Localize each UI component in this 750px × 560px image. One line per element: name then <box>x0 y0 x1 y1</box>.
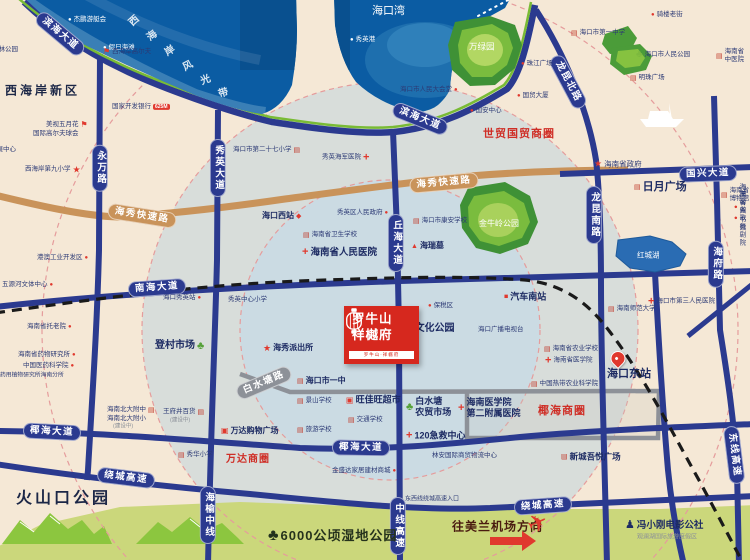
map-poi: 秀英区人民政府● <box>337 209 388 217</box>
road-label: 海秀快速路 <box>409 172 479 194</box>
poi-label: 海口东站 <box>607 368 651 382</box>
cross-icon: + <box>302 248 308 259</box>
scenic-belt-char: 海 <box>142 26 159 44</box>
park-label: 万绿园 <box>469 42 495 53</box>
poi-label: 海口市康安学校 <box>422 217 468 225</box>
poi-label: 会展中心 <box>0 146 16 154</box>
map-poi: ♣海口市人民公园 <box>636 50 690 60</box>
poi-label: 海南北大附中 <box>107 406 146 414</box>
map-poi: ▤海口市一中 <box>297 376 346 386</box>
poi-label: 625M <box>153 104 170 110</box>
poi-label: 金盛达家居建材商城 <box>332 467 391 475</box>
road-label: 龙昆北路 <box>547 53 589 112</box>
map-poi: 林安国际商贸物流中心 <box>432 452 497 460</box>
district-label: 西海岸新区 <box>5 84 80 99</box>
poi-label: 国家开发银行 <box>112 103 151 111</box>
poi-label: 王府井百货 <box>163 408 196 416</box>
map-poi: ▤中国热带农业科学院 <box>531 380 598 388</box>
map-poi: ●珠江广场 <box>521 60 553 68</box>
scenic-belt-char: 带 <box>216 83 230 100</box>
map-poi: ●杰鹏游艇会 <box>68 16 106 24</box>
poi-label: 6000公顷湿地公园 <box>281 528 398 544</box>
poi-label: (建设中) <box>170 418 190 425</box>
road-label: 海府路 <box>708 241 724 288</box>
poi-label: 旺佳旺超市 <box>356 394 401 405</box>
wdot-icon: ● <box>68 17 72 23</box>
map-poi: ♣白水塘 农贸市场 <box>406 396 451 419</box>
bldg-icon: ▤ <box>544 346 551 353</box>
map-poi: 秀英中心小学 <box>228 296 267 304</box>
poi-label: 文化公园 <box>415 323 455 336</box>
map-poi: ▤日月广场 <box>634 181 687 195</box>
map-poi: ▤明珠广场 <box>630 74 665 82</box>
dot-icon: ● <box>385 210 389 216</box>
bldg-icon: ▤ <box>561 454 568 461</box>
poi-label: 林安国际商贸物流中心 <box>432 452 497 460</box>
wetland-label: ♣6000公顷湿地公园 <box>268 528 397 544</box>
map-poi: 东西线绕城高速入口 <box>405 496 459 504</box>
poi-label: 秀英区人民政府 <box>337 209 383 217</box>
poi-label: 景山学校 <box>306 397 332 405</box>
business-circle-label: 椰海商圈 <box>538 405 586 419</box>
poi-label: 万达商圈 <box>226 454 270 467</box>
road-label: 东线高速 <box>722 425 745 485</box>
map-poi: 国家开发银行 <box>112 103 151 111</box>
map-poi: 海口市第二十七小学▤ <box>233 146 300 154</box>
poi-label: 海南省药物研究所 <box>18 351 70 359</box>
road-label: 椰海大道 <box>23 422 82 441</box>
dot-icon: ● <box>428 303 432 309</box>
bldg-icon: ▤ <box>297 378 304 385</box>
poi-label: 新城吾悦广场 <box>570 452 621 463</box>
map-poi: ●国安中心 <box>470 107 502 115</box>
poi-label: 世贸国贸商圈 <box>483 128 555 142</box>
map-poi: ▤秀华小学 <box>178 451 213 459</box>
road-label: 永万路 <box>92 145 108 192</box>
map-poi: 森林公园 <box>0 46 18 54</box>
dot-icon: ● <box>198 295 202 301</box>
map-poi: 海南省托老院● <box>27 323 72 331</box>
map-poi: +120急救中心 <box>406 430 465 441</box>
poi-label: 海口广播电视台 <box>478 326 524 334</box>
poi-label: 国际高尔夫球会 <box>33 130 79 138</box>
map-poi: 海口秀英站● <box>163 294 201 302</box>
star-icon: ★ <box>594 160 602 169</box>
scenic-belt-char: 岸 <box>161 40 178 58</box>
dot-icon: ● <box>68 324 72 330</box>
poi-label: 椰海商圈 <box>538 405 586 419</box>
poi-label: 骑楼老街 <box>657 11 683 19</box>
poi-label: 西海岸新区 <box>5 84 80 99</box>
poi-label: 红城湖 <box>637 250 660 259</box>
poi-label: 海南省政府 <box>604 159 642 168</box>
map-poi: 王府井百货▤ <box>163 408 204 416</box>
map-poi: 海口广播电视台 <box>478 326 524 334</box>
scenic-belt-char: 风 <box>179 56 195 74</box>
poi-label: (建设中) <box>113 424 133 431</box>
dot-icon: ● <box>393 468 397 474</box>
road-label: 秀英大道 <box>210 139 226 197</box>
bldg-icon: ▤ <box>148 407 155 414</box>
poi-label: 保税区 <box>434 302 454 310</box>
map-poi: 会展中心 <box>0 146 16 154</box>
dot-icon: ● <box>651 12 655 18</box>
shop-icon: ▣ <box>346 396 354 404</box>
leaf-icon: ♣ <box>636 50 643 60</box>
map-poi: 药用植物研究所海南分所 <box>0 372 64 379</box>
map-poi: ▤海南省中医院 <box>716 48 750 64</box>
poi-label: 登村市场 <box>155 340 195 353</box>
bldg-icon: ▤ <box>297 427 304 434</box>
map-poi: 625M <box>153 104 170 110</box>
flag-icon: ⚑ <box>103 48 110 56</box>
map-poi: ●骑楼老街 <box>651 11 683 19</box>
map-poi: (建设中) <box>113 424 133 431</box>
poi-label: 海南省卫生学校 <box>312 231 358 239</box>
poi-label: 海南省中医院 <box>725 48 750 64</box>
business-circle-label: 世贸国贸商圈 <box>483 128 555 142</box>
map-poi: ▤海南省农业学校 <box>544 345 598 353</box>
poi-label: 五源河文体中心 <box>2 281 48 289</box>
poi-label: 秀英港 <box>356 36 376 44</box>
poi-label: 万绿园 <box>469 42 495 53</box>
poi-label: 白水塘 农贸市场 <box>415 396 451 419</box>
poi-label: 120急救中心 <box>414 430 465 441</box>
station-pin <box>607 348 628 369</box>
road-label: 丘海大道 <box>388 214 404 272</box>
tree-icon: ♣ <box>268 528 279 544</box>
poi-label: 中国医药科学院 <box>23 362 69 370</box>
map-poi: ★海秀派出所 <box>263 343 313 353</box>
railway-station-label: 海口东站 <box>607 368 651 382</box>
dot-icon: ● <box>470 108 474 114</box>
map-poi: 国际高尔夫球会 <box>33 130 79 138</box>
poi-label: 港澳工业开发区 <box>37 254 83 262</box>
map-poi: ■汽车南站 <box>504 291 546 302</box>
bldg-icon: ▤ <box>303 232 310 239</box>
poi-label: 海瑞墓 <box>420 241 444 251</box>
map-poi: 金盛达家居建材商城● <box>332 467 396 475</box>
map-poi: ▲海瑞墓 <box>411 241 444 251</box>
bldg-icon: ▤ <box>348 417 355 424</box>
poi-label: 海口市第一中学 <box>580 29 626 37</box>
poi-label: 东西线绕城高速入口 <box>405 496 459 504</box>
volcano-park-label: 火山口公园 <box>16 489 111 509</box>
poi-label: 西海岸第九小学 <box>25 166 71 174</box>
map-poi: ⚑西海岸高尔夫 <box>103 48 151 56</box>
poi-label: 中国热带农业科学院 <box>540 380 599 388</box>
cross-icon: + <box>363 153 369 164</box>
poi-label: 海南北大附小 <box>107 415 146 423</box>
poi-label: 美视五月花 <box>46 121 79 129</box>
map-poi: 海南北大附小 <box>107 415 146 423</box>
bldg-icon: ▤ <box>198 409 205 416</box>
map-poi: +海南省医学院 <box>545 356 592 367</box>
shop-icon: ▣ <box>221 427 229 435</box>
poi-label: 海南省人民医院 <box>310 247 377 259</box>
dot-icon: ● <box>71 363 75 369</box>
bldg-icon: ▤ <box>413 218 420 225</box>
map-poi: ♟冯小刚电影公社 <box>625 520 703 532</box>
bldg-icon: ▤ <box>716 53 723 60</box>
pawn-icon: ♟ <box>625 521 635 532</box>
poi-label: 秀英海军医院 <box>322 154 361 162</box>
scenic-belt-char: 光 <box>198 70 213 88</box>
road-label: 龙昆南路 <box>586 186 602 244</box>
cross-icon: + <box>648 297 654 308</box>
label-layer: 滨海大道滨海大道海秀快速路海秀快速路南海大道椰海大道椰海大道国兴大道绕城高速绕城… <box>0 0 750 560</box>
bldg-icon: ▤ <box>531 381 538 388</box>
project-tagline: 罗牛山·祥樾府 <box>364 352 400 358</box>
poi-label: 海口市一中 <box>306 376 346 386</box>
poi-label: 秀华小学 <box>187 451 213 459</box>
map-poi: 港澳工业开发区● <box>37 254 88 262</box>
bldg-icon: ▤ <box>630 75 637 82</box>
map-poi: 海南北大附中▤ <box>107 406 155 414</box>
poi-label: 海南省托老院 <box>27 323 66 331</box>
road-label: 中线高速 <box>390 497 406 555</box>
bldg-icon: ▤ <box>178 452 185 459</box>
star-icon: ★ <box>263 344 271 353</box>
poi-label: 海秀派出所 <box>273 343 313 353</box>
map-poi: ▤海口市康安学校 <box>413 217 467 225</box>
poi-label: 海口湾 <box>372 5 405 19</box>
road-label: 椰海大道 <box>332 439 390 456</box>
map-poi: ●保税区 <box>428 302 453 310</box>
diam-icon: ◆ <box>296 213 301 220</box>
map-poi: (建设中) <box>170 418 190 425</box>
wdot-icon: ● <box>350 37 354 43</box>
map-poi: ●国贸大厦 <box>517 92 549 100</box>
poi-label: 明珠广场 <box>639 74 665 82</box>
bldg-icon: ▤ <box>294 147 301 154</box>
map-poi: 海南省药物研究所● <box>18 351 76 359</box>
dot-icon: ● <box>85 255 89 261</box>
sq-icon: ■ <box>504 294 508 301</box>
poi-label: 旅游学校 <box>306 426 332 434</box>
dot-icon: ● <box>50 282 54 288</box>
dot-icon: ● <box>454 87 458 93</box>
poi-label: 国安中心 <box>476 107 502 115</box>
project-tagline-strip: 罗牛山·祥樾府 <box>349 351 414 359</box>
flag-icon: ⚑ <box>81 121 88 129</box>
poi-label: 交通学校 <box>357 416 383 424</box>
poi-label: 秀英中心小学 <box>228 296 267 304</box>
poi-label: 金牛岭公园 <box>479 219 519 229</box>
poi-label: 海口市第三人民医院 <box>656 298 715 306</box>
poi-label: 海南医学院 第二附属医院 <box>466 397 520 420</box>
cross-icon: + <box>545 356 551 367</box>
poi-label: 森林公园 <box>0 46 18 54</box>
tomb-icon: ▲ <box>411 243 418 250</box>
poi-label: 海口秀英站 <box>163 294 196 302</box>
lantern-icon <box>344 306 364 336</box>
star-icon: ★ <box>73 166 81 175</box>
location-map: 滨海大道滨海大道海秀快速路海秀快速路南海大道椰海大道椰海大道国兴大道绕城高速绕城… <box>0 0 750 560</box>
map-poi: +海口市第三人民医院 <box>648 297 715 308</box>
map-poi: ●秀英港 <box>350 36 375 44</box>
dot-icon: ● <box>521 61 525 67</box>
poi-label: 万达购物广场 <box>231 426 279 436</box>
scenic-belt-char: 西 <box>124 11 141 29</box>
veg-icon: ♣ <box>406 402 413 413</box>
poi-label: 海南省农业学校 <box>553 345 599 353</box>
map-poi: 海口市人民大会堂● <box>400 86 458 94</box>
bldg-icon: ▤ <box>608 306 615 313</box>
poi-label: 观澜湖国际旅游度假区 <box>637 534 697 542</box>
road-label: 海榆中线 <box>200 486 216 544</box>
map-poi: 美视五月花⚑ <box>46 121 88 129</box>
map-poi: 红城湖 <box>637 250 660 259</box>
bay-label: 海口湾 <box>372 5 405 19</box>
poi-label: 冯小刚电影公社 <box>637 520 704 532</box>
bldg-icon: ▤ <box>297 398 304 405</box>
poi-label: 西海岸高尔夫 <box>112 48 151 56</box>
bldg-icon: ▤ <box>634 185 641 192</box>
poi-label: 药用植物研究所海南分所 <box>0 372 64 379</box>
poi-label: 海口西站 <box>262 211 294 221</box>
poi-label: 海口市人民公园 <box>645 51 691 59</box>
map-poi: ▣旺佳旺超市 <box>346 394 401 405</box>
road-label: 滨海大道 <box>390 101 450 138</box>
business-circle-label: 万达商圈 <box>226 454 270 467</box>
map-poi: 西海岸第九小学★ <box>25 166 81 175</box>
park-label: 金牛岭公园 <box>479 219 519 229</box>
map-poi: 五源河文体中心● <box>2 281 53 289</box>
map-poi: 登村市场♣ <box>155 340 204 353</box>
map-poi: ▤交通学校 <box>348 416 383 424</box>
cross-icon: + <box>406 431 412 442</box>
poi-label: 海南省歌舞剧院 <box>740 191 750 248</box>
road-label: 海秀快速路 <box>107 203 178 230</box>
poi-label: 珠江广场 <box>527 60 553 68</box>
poi-label: 海口市第二十七小学 <box>233 146 292 154</box>
map-poi: ▤海口市第一中学 <box>571 29 625 37</box>
map-poi: 中国医药科学院● <box>23 362 74 370</box>
poi-label: 杰鹏游艇会 <box>74 16 107 24</box>
map-poi: 秀英海军医院+ <box>322 153 369 164</box>
road-label: 绕城高速 <box>96 466 156 489</box>
bldg-icon: ▤ <box>571 30 578 37</box>
map-poi: ★海南省政府 <box>594 159 642 168</box>
map-poi: ●海南省歌舞剧院 <box>734 191 750 248</box>
poi-label: 海南省医学院 <box>553 357 592 365</box>
map-poi: +海南省人民医院 <box>302 247 377 259</box>
road-label: 白水塘路 <box>234 364 294 402</box>
map-poi: ▤景山学校 <box>297 397 332 405</box>
veg-icon: ♣ <box>197 341 204 352</box>
poi-label: 汽车南站 <box>510 291 546 302</box>
cross-icon: + <box>458 403 464 414</box>
map-poi: 观澜湖国际旅游度假区 <box>637 534 697 542</box>
bldg-icon: ▤ <box>721 192 728 199</box>
poi-label: 海口市人民大会堂 <box>400 86 452 94</box>
dot-icon: ● <box>734 216 738 222</box>
poi-label: 日月广场 <box>643 181 687 195</box>
road-label: 国兴大道 <box>679 165 738 183</box>
dot-icon: ● <box>72 352 76 358</box>
poi-label: 火山口公园 <box>16 489 111 509</box>
map-poi: ▤旅游学校 <box>297 426 332 434</box>
map-poi: ▤新城吾悦广场 <box>561 452 621 463</box>
project-logo: 罗牛山 祥樾府 罗牛山·祥樾府 <box>344 306 419 364</box>
poi-label: 国贸大厦 <box>523 92 549 100</box>
dot-icon: ● <box>517 93 521 99</box>
map-poi: ▣万达购物广场 <box>221 426 279 436</box>
map-poi: 海口西站◆ <box>262 211 301 221</box>
map-poi: ▤海南省卫生学校 <box>303 231 357 239</box>
map-poi: +海南医学院 第二附属医院 <box>458 397 520 420</box>
